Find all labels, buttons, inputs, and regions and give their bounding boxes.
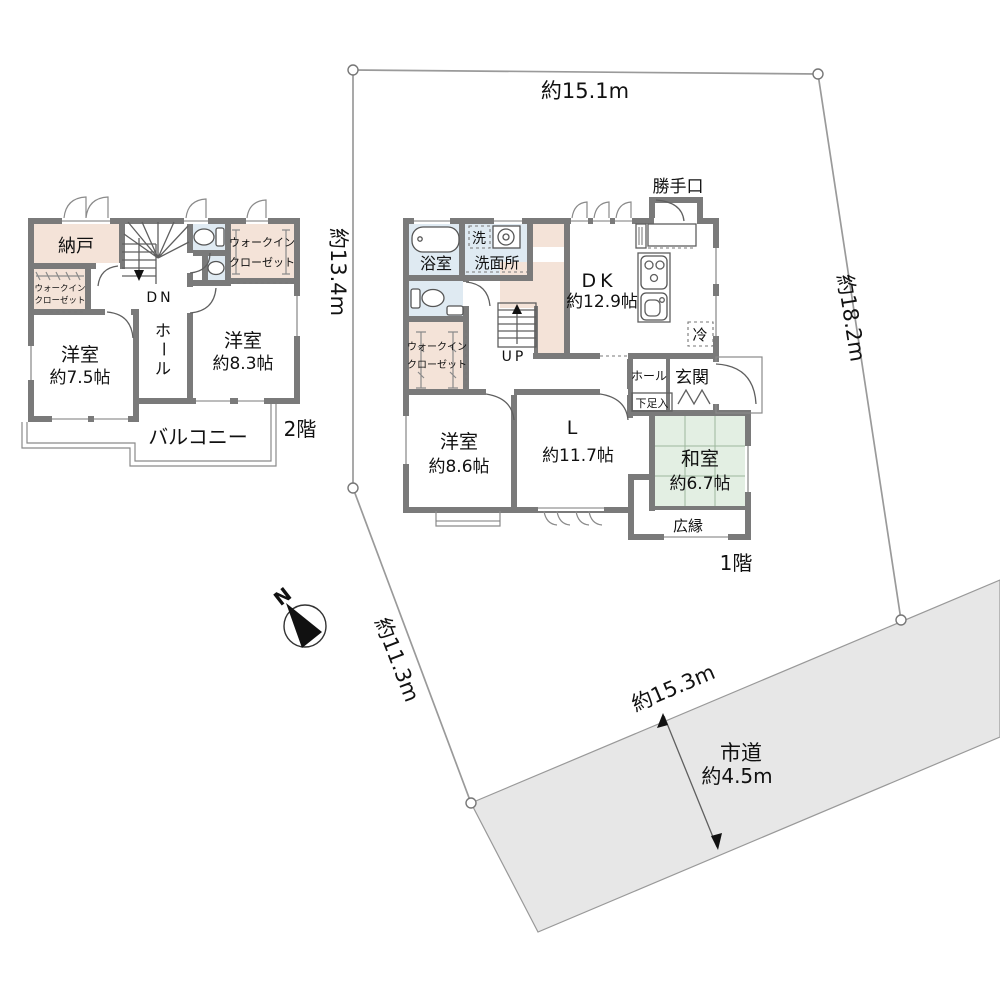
bedroom75-size: 約7.5帖 [49,368,110,388]
hall-1f-label: ホール [631,369,667,383]
kitchen-island [638,253,670,322]
floorplan-page: 約15.1m 約18.2m 約13.4m 約11.3m 約15.3m 市道 約4… [0,0,1000,1000]
bedroom83-name: 洋室 [224,330,262,352]
floorplan-canvas: 約15.1m 約18.2m 約13.4m 約11.3m 約15.3m 市道 約4… [0,0,1000,1000]
road-width-label: 約4.5m [701,764,772,788]
floor2-plan: 納戸 ウォークイン クローゼット ウォークイン クローゼット 洋室 約7.5帖 … [22,197,316,466]
wic-right-label-1: ウォークイン [229,236,295,249]
boundary-point [466,798,476,808]
japanese-room-name: 和室 [681,448,719,470]
boundary-point [813,69,823,79]
laundry-label: 洗 [472,231,486,247]
dk-name-label: DK [581,270,616,292]
stairs-down-label: DN [146,290,173,306]
living-size: 約11.7帖 [542,446,614,466]
dimension-left: 約13.4m [326,228,350,316]
dimension-top: 約15.1m [541,79,629,103]
wic-left-label-1: ウォークイン [34,284,85,294]
living-name: L [567,417,578,439]
hall-2f-char2: ー [154,341,173,357]
dimension-diagonal: 約11.3m [370,614,424,705]
bath-label: 浴室 [420,254,452,273]
kitchen-sink-icon [641,293,667,320]
back-door-label: 勝手口 [653,177,704,197]
fridge-label: 冷 [692,326,707,344]
wic-right-label-2: クローゼット [229,256,295,269]
boundary-point [896,615,906,625]
boundary-top [353,70,818,74]
floor1-title: 1階 [720,551,753,575]
wic-left-label-2: クローゼット [34,295,85,306]
washbasin-icon-2f [208,262,224,275]
boundary-point [348,65,358,75]
bedroom75-name: 洋室 [61,344,99,366]
bedroom86-size: 約8.6帖 [428,457,489,477]
dk-size-label: 約12.9帖 [566,292,638,312]
washroom-label: 洗面所 [474,254,519,272]
japanese-room-size: 約6.7帖 [669,474,730,494]
toilet-icon-2f [194,228,224,246]
washing-machine-icon [493,226,520,248]
hall-2f-char3: ル [155,359,171,378]
north-compass: N [270,583,326,648]
boundary-point [348,483,358,493]
road-name-label: 市道 [720,741,762,765]
entrance-porch [716,357,762,413]
boundary-diagonal [353,488,471,803]
stairs-up-label: UP [502,349,527,365]
veranda-label: 広縁 [673,517,703,535]
bay-window [436,511,500,526]
hall-2f-char1: ホ [155,321,171,340]
room-wic-right [231,224,294,279]
bedroom83-size: 約8.3帖 [212,354,273,374]
corridor-cell-3 [538,308,565,353]
shoe-box-label: 下足入 [636,397,669,410]
corridor-cell-1 [532,224,565,247]
entrance-door-arc [716,364,756,404]
entrance-label: 玄関 [675,368,709,388]
bathtub-icon [412,227,459,252]
stove-icon [641,256,667,289]
floor1-plan: 浴室 洗 洗面所 ウォークイン クローゼット UP DK 約12.9帖 冷 勝手… [403,177,762,575]
floor2-title: 2階 [284,417,317,441]
balcony-label: バルコニー [148,425,248,449]
wic1f-label-2: クローゼット [407,359,467,371]
north-label: N [270,583,296,610]
bedroom86-name: 洋室 [440,431,478,453]
dimension-right: 約18.2m [832,272,870,363]
storage-label: 納戸 [58,236,94,257]
wic1f-label-1: ウォークイン [407,341,467,353]
